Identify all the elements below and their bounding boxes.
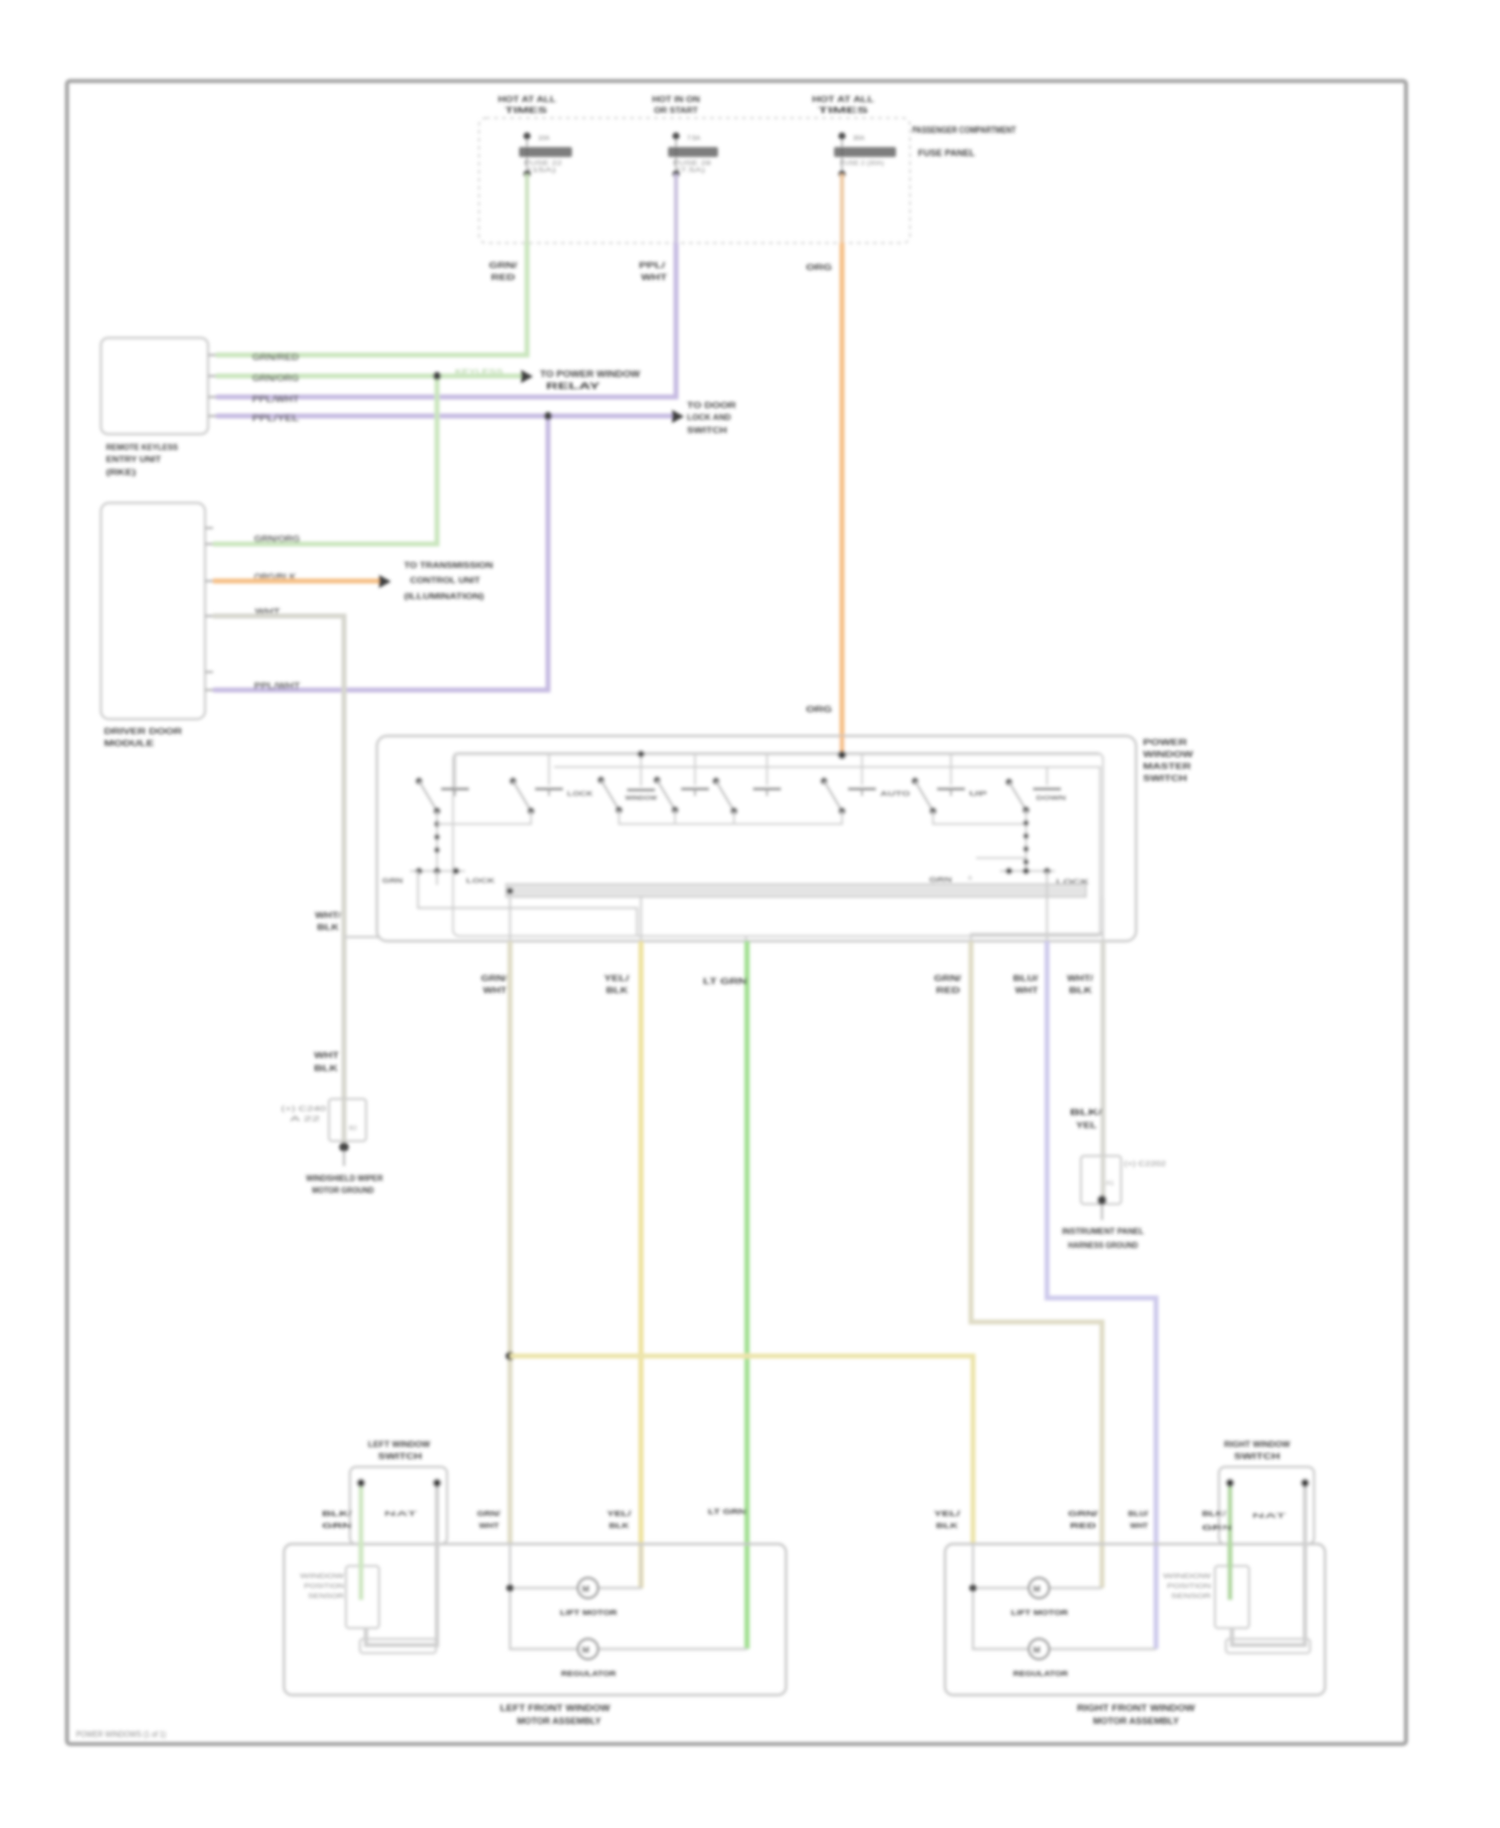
svg-text:CONTROL UNIT: CONTROL UNIT	[410, 576, 480, 585]
svg-text:WINDOW: WINDOW	[300, 1573, 345, 1580]
svg-text:RED: RED	[1070, 1521, 1097, 1530]
svg-text:ENTRY UNIT: ENTRY UNIT	[106, 455, 161, 464]
svg-text:M: M	[1033, 1645, 1041, 1655]
svg-text:(+) C240: (+) C240	[281, 1106, 326, 1113]
svg-text:POWER: POWER	[1143, 738, 1187, 747]
svg-text:FUSE 22: FUSE 22	[524, 160, 563, 167]
svg-text:PPL/YEL: PPL/YEL	[252, 413, 299, 424]
svg-text:BLU/: BLU/	[1013, 974, 1039, 983]
svg-text:OR START: OR START	[654, 106, 698, 115]
svg-text:7.5A: 7.5A	[687, 135, 701, 142]
svg-text:GRN/ORG: GRN/ORG	[254, 534, 300, 545]
svg-text:MOTOR ASSEMBLY: MOTOR ASSEMBLY	[517, 1716, 602, 1727]
svg-text:PPL/WHT: PPL/WHT	[252, 394, 299, 405]
svg-text:REGULATOR: REGULATOR	[561, 1669, 617, 1678]
svg-text:KEYLESS: KEYLESS	[455, 369, 503, 376]
svg-text:LEFT WINDOW: LEFT WINDOW	[368, 1440, 430, 1449]
svg-text:RED: RED	[491, 273, 515, 282]
svg-text:RED: RED	[936, 986, 960, 995]
svg-text:(+) C2202: (+) C2202	[1124, 1161, 1166, 1168]
svg-text:TO DOOR: TO DOOR	[687, 401, 736, 410]
svg-text:REMOTE KEYLESS: REMOTE KEYLESS	[106, 443, 179, 452]
svg-text:GRN/: GRN/	[477, 1509, 501, 1518]
svg-text:WHT: WHT	[1015, 986, 1038, 995]
svg-text:GRN: GRN	[382, 878, 403, 885]
svg-text:HOT AT ALL: HOT AT ALL	[498, 95, 556, 104]
svg-text:WHT: WHT	[641, 273, 667, 282]
svg-text:RIGHT WINDOW: RIGHT WINDOW	[1224, 1440, 1290, 1449]
svg-text:A1: A1	[1106, 1180, 1114, 1187]
svg-text:RIGHT FRONT WINDOW: RIGHT FRONT WINDOW	[1077, 1703, 1195, 1714]
svg-text:M: M	[582, 1584, 590, 1594]
svg-text:WHT: WHT	[1130, 1521, 1148, 1530]
svg-text:FUSE 28: FUSE 28	[673, 160, 712, 167]
svg-text:LOCK: LOCK	[466, 878, 495, 885]
svg-text:HARNESS GROUND: HARNESS GROUND	[1068, 1241, 1138, 1250]
svg-text:GRN/: GRN/	[489, 261, 518, 270]
svg-text:BLK: BLK	[609, 1521, 630, 1530]
svg-text:FUSE 2 (30A): FUSE 2 (30A)	[840, 160, 884, 167]
svg-text:GRN/RED: GRN/RED	[252, 352, 299, 363]
svg-text:HOT AT ALL: HOT AT ALL	[812, 95, 874, 104]
svg-text:WHT: WHT	[483, 986, 507, 995]
svg-text:BLK/: BLK/	[322, 1509, 354, 1518]
svg-text:DRIVER DOOR: DRIVER DOOR	[104, 727, 182, 736]
svg-text:HOT IN ON: HOT IN ON	[652, 95, 700, 104]
svg-text:BLU/: BLU/	[1128, 1509, 1149, 1518]
svg-text:GRN: GRN	[322, 1521, 352, 1530]
svg-text:(RKE): (RKE)	[106, 468, 136, 477]
svg-text:GRN: GRN	[929, 877, 952, 884]
svg-text:WHT: WHT	[479, 1521, 499, 1530]
svg-text:AUTO: AUTO	[880, 791, 911, 798]
svg-text:YEL/: YEL/	[607, 1509, 632, 1518]
svg-text:B2: B2	[349, 1125, 357, 1132]
svg-text:PPL/: PPL/	[639, 261, 666, 270]
svg-text:TO TRANSMISSION: TO TRANSMISSION	[404, 561, 493, 570]
svg-text:SENSOR: SENSOR	[308, 1593, 344, 1600]
svg-text:MODULE: MODULE	[104, 739, 155, 748]
svg-text:PPL/WHT: PPL/WHT	[254, 681, 300, 692]
svg-text:ORG: ORG	[806, 263, 832, 272]
svg-text:M: M	[1033, 1584, 1041, 1594]
svg-text:WHT/: WHT/	[315, 911, 342, 920]
svg-text:BLK: BLK	[606, 986, 628, 995]
svg-text:REGULATOR: REGULATOR	[1013, 1669, 1069, 1678]
svg-text:BLK/: BLK/	[1070, 1108, 1103, 1117]
svg-text:SWITCH: SWITCH	[1234, 1452, 1280, 1461]
svg-text:SWITCH: SWITCH	[687, 426, 727, 435]
svg-text:LEFT FRONT WINDOW: LEFT FRONT WINDOW	[500, 1703, 610, 1714]
svg-text:BLK: BLK	[1069, 986, 1092, 995]
svg-text:GRN/: GRN/	[934, 974, 962, 983]
svg-text:LIFT MOTOR: LIFT MOTOR	[1011, 1608, 1069, 1617]
svg-text:POSITION: POSITION	[1167, 1583, 1211, 1590]
svg-text:LT GRN: LT GRN	[708, 1507, 746, 1516]
svg-text:WHT/: WHT/	[1067, 974, 1094, 983]
svg-text:MOTOR ASSEMBLY: MOTOR ASSEMBLY	[1093, 1716, 1180, 1727]
svg-text:GRN/: GRN/	[481, 974, 508, 983]
svg-text:10A: 10A	[538, 135, 550, 142]
svg-text:BLK: BLK	[314, 1064, 338, 1073]
svg-text:UP: UP	[969, 791, 988, 798]
svg-text:POSITION: POSITION	[304, 1583, 344, 1590]
svg-text:(15A): (15A)	[528, 168, 556, 174]
svg-text:SWITCH: SWITCH	[1143, 774, 1187, 783]
svg-text:30A: 30A	[853, 135, 865, 142]
svg-text:FUSE PANEL: FUSE PANEL	[918, 148, 976, 158]
svg-text:NAT: NAT	[384, 1509, 418, 1518]
svg-text:A: A	[968, 876, 972, 882]
svg-text:RELAY: RELAY	[546, 381, 600, 391]
svg-text:WHT: WHT	[314, 1051, 339, 1060]
svg-text:LOCK: LOCK	[567, 791, 593, 798]
svg-text:MASTER: MASTER	[1143, 762, 1191, 771]
svg-text:(ILLUMINATION): (ILLUMINATION)	[404, 592, 484, 601]
svg-text:(7.5A): (7.5A)	[677, 168, 705, 174]
svg-text:A 22: A 22	[290, 1116, 320, 1123]
svg-text:GRN: GRN	[1202, 1523, 1232, 1532]
svg-text:SWITCH: SWITCH	[378, 1452, 422, 1461]
svg-text:M: M	[582, 1645, 590, 1655]
svg-text:TIMES: TIMES	[818, 106, 869, 115]
svg-text:BLK: BLK	[317, 923, 339, 932]
svg-text:YEL: YEL	[1076, 1121, 1097, 1130]
svg-text:LT GRN: LT GRN	[703, 977, 747, 986]
svg-text:YEL/: YEL/	[934, 1509, 961, 1518]
svg-text:LOCK AND: LOCK AND	[687, 413, 731, 422]
svg-text:BLK: BLK	[936, 1521, 959, 1530]
svg-text:YEL/: YEL/	[604, 974, 630, 983]
svg-text:GRN/: GRN/	[1068, 1509, 1099, 1518]
svg-text:SENSOR: SENSOR	[1171, 1593, 1211, 1600]
svg-text:TO POWER WINDOW: TO POWER WINDOW	[540, 369, 641, 379]
svg-text:WINDSHIELD WIPER: WINDSHIELD WIPER	[306, 1174, 383, 1183]
svg-text:PASSENGER COMPARTMENT: PASSENGER COMPARTMENT	[912, 125, 1016, 135]
svg-text:WINDOW: WINDOW	[625, 795, 658, 802]
svg-text:NAT: NAT	[1252, 1511, 1287, 1520]
svg-text:BLK/: BLK/	[1202, 1509, 1227, 1518]
svg-text:WINDOW: WINDOW	[1163, 1573, 1212, 1580]
svg-text:POWER WINDOWS (1 of 1): POWER WINDOWS (1 of 1)	[76, 1730, 166, 1739]
svg-text:DOWN: DOWN	[1036, 795, 1066, 802]
svg-text:WINDOW: WINDOW	[1143, 750, 1194, 759]
svg-text:MOTOR GROUND: MOTOR GROUND	[312, 1186, 374, 1195]
svg-text:GRN/ORG: GRN/ORG	[252, 373, 299, 384]
svg-text:INSTRUMENT PANEL: INSTRUMENT PANEL	[1062, 1227, 1144, 1236]
svg-text:TIMES: TIMES	[505, 106, 548, 115]
svg-text:LIFT MOTOR: LIFT MOTOR	[560, 1608, 618, 1617]
svg-text:ORG: ORG	[806, 705, 832, 714]
